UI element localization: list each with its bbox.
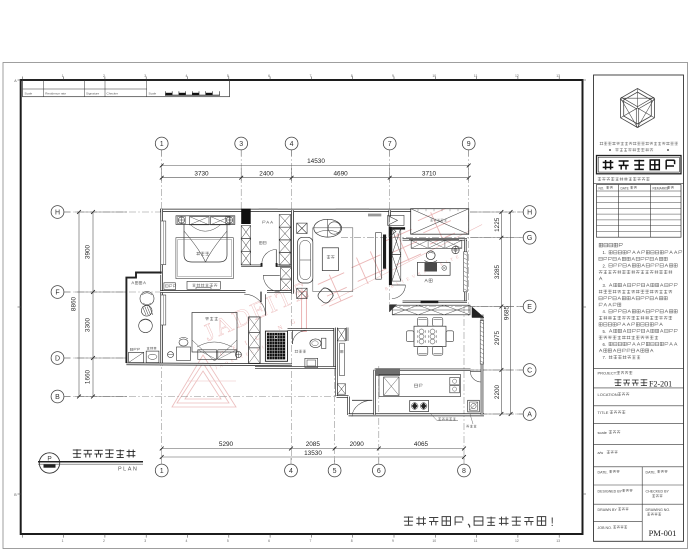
svg-text:5.: 5.	[603, 329, 607, 334]
svg-text:12: 12	[515, 74, 519, 78]
svg-text:7: 7	[309, 74, 311, 78]
svg-text:5290: 5290	[219, 441, 234, 448]
svg-text:7: 7	[388, 141, 392, 148]
svg-text:3730: 3730	[194, 170, 209, 177]
svg-text:13: 13	[556, 74, 560, 78]
svg-text:2085: 2085	[306, 441, 321, 448]
svg-text:H: H	[527, 209, 532, 216]
svg-text:3: 3	[144, 539, 146, 543]
svg-text:4: 4	[186, 74, 188, 78]
svg-text:a/w: a/w	[598, 451, 604, 455]
svg-text:12: 12	[515, 539, 519, 543]
svg-text:6.: 6.	[603, 342, 607, 347]
svg-text:1: 1	[160, 468, 164, 475]
svg-text:1225: 1225	[494, 217, 501, 232]
svg-text:7.: 7.	[603, 355, 607, 360]
svg-text:2400: 2400	[259, 170, 274, 177]
svg-text:4.: 4.	[603, 309, 607, 314]
svg-text:4065: 4065	[414, 441, 429, 448]
svg-text:PM-001: PM-001	[649, 528, 677, 538]
svg-text:1.: 1.	[603, 250, 607, 255]
svg-text:3710: 3710	[422, 170, 437, 177]
svg-text:1660: 1660	[85, 369, 92, 384]
svg-text:5: 5	[227, 539, 229, 543]
svg-text:CHECKED BY: CHECKED BY	[646, 489, 670, 493]
svg-text:6: 6	[268, 74, 270, 78]
svg-text:13530: 13530	[304, 450, 322, 457]
svg-text:10: 10	[432, 74, 436, 78]
svg-text:2090: 2090	[350, 441, 365, 448]
svg-text:6: 6	[377, 468, 381, 475]
svg-text:A: A	[527, 411, 532, 418]
svg-text:4: 4	[290, 141, 294, 148]
svg-text:3300: 3300	[85, 317, 92, 332]
svg-text:Scale: Scale	[25, 91, 33, 95]
svg-text:scale: scale	[598, 430, 608, 435]
svg-text:PROJECT:: PROJECT:	[598, 371, 617, 376]
svg-text:4690: 4690	[333, 170, 348, 177]
svg-text:!: !	[551, 517, 554, 529]
svg-text:DRAWING NO.: DRAWING NO.	[646, 508, 671, 512]
svg-text:D: D	[55, 355, 60, 362]
svg-text:2200: 2200	[494, 384, 501, 399]
svg-text:2: 2	[103, 74, 105, 78]
svg-text:TITLE: TITLE	[598, 410, 609, 415]
svg-text:LOCATION: LOCATION	[598, 392, 618, 397]
svg-text:3: 3	[239, 141, 243, 148]
svg-text:F: F	[55, 289, 59, 296]
svg-text:5: 5	[333, 468, 337, 475]
svg-text:9685: 9685	[504, 305, 511, 320]
svg-text:DRAWN BY: DRAWN BY	[598, 508, 618, 512]
svg-text:9: 9	[392, 74, 394, 78]
svg-text:H: H	[55, 209, 60, 216]
svg-text:1: 1	[62, 74, 64, 78]
svg-text:6: 6	[268, 539, 270, 543]
svg-text:9: 9	[392, 539, 394, 543]
svg-text:11: 11	[474, 74, 478, 78]
svg-text:Scale: Scale	[149, 91, 157, 95]
svg-text:C: C	[527, 367, 532, 374]
svg-text:B: B	[55, 394, 60, 401]
svg-text:G: G	[527, 235, 532, 242]
svg-text:DATE.: DATE.	[646, 470, 656, 474]
svg-text:14530: 14530	[307, 158, 325, 165]
svg-text:Checker: Checker	[107, 91, 119, 95]
svg-text:1: 1	[62, 539, 64, 543]
svg-text:Signature: Signature	[86, 91, 100, 95]
svg-text:PLAN: PLAN	[118, 467, 138, 473]
svg-text:10: 10	[432, 539, 436, 543]
svg-text:DESIGNED BY: DESIGNED BY	[598, 489, 623, 493]
svg-text:Residence rate: Residence rate	[45, 91, 66, 95]
svg-text:3: 3	[144, 74, 146, 78]
svg-text:8860: 8860	[71, 296, 78, 311]
svg-text:3.: 3.	[603, 283, 607, 288]
svg-text:11: 11	[474, 539, 478, 543]
svg-text:E: E	[527, 304, 532, 311]
svg-text:9: 9	[467, 141, 471, 148]
svg-text:4: 4	[186, 539, 188, 543]
svg-text:4: 4	[289, 468, 293, 475]
svg-text:F2-201: F2-201	[649, 379, 672, 388]
svg-text:8: 8	[351, 74, 353, 78]
svg-text:8: 8	[351, 539, 353, 543]
svg-text:5: 5	[227, 74, 229, 78]
svg-text:NO.: NO.	[599, 186, 605, 190]
svg-text:3285: 3285	[494, 264, 501, 279]
svg-text:2: 2	[103, 539, 105, 543]
svg-text:1: 1	[160, 141, 164, 148]
svg-text:2.: 2.	[603, 263, 607, 268]
svg-text:8: 8	[462, 468, 466, 475]
svg-text:JOB NO.: JOB NO.	[598, 526, 612, 530]
svg-text:DATE.: DATE.	[598, 470, 608, 474]
svg-text:3900: 3900	[85, 244, 92, 259]
svg-text:2975: 2975	[494, 330, 501, 345]
svg-text:13: 13	[556, 539, 560, 543]
svg-text:7: 7	[309, 539, 311, 543]
svg-text:DATE: DATE	[621, 186, 629, 190]
svg-text:REMARKS: REMARKS	[653, 186, 669, 190]
